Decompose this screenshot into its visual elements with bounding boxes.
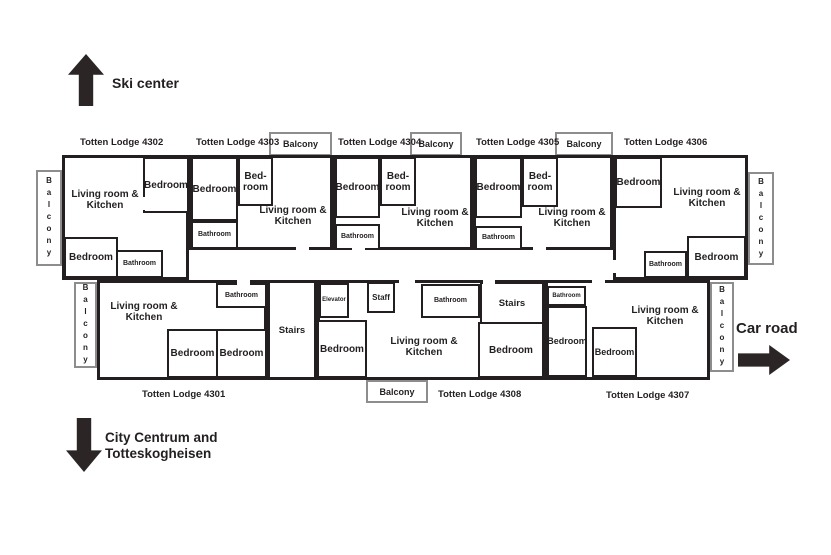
living-kitchen-label: Living room & Kitchen: [66, 189, 144, 211]
door-opening: [237, 279, 250, 287]
bathroom-label: Bathroom: [482, 234, 515, 242]
room-elevator: Elevator: [319, 283, 349, 318]
up-arrow-icon: [68, 54, 104, 106]
bedroom-label-line2: room: [528, 182, 553, 193]
room-bedroom: Bedroom: [167, 329, 218, 378]
room-living-kitchen: Living room & Kitchen: [533, 200, 611, 236]
bedroom-label: Bedroom: [489, 345, 533, 356]
living-kitchen-label: Living room & Kitchen: [378, 336, 470, 358]
living-kitchen-label: Living room & Kitchen: [533, 207, 611, 229]
bedroom-label: Bedroom: [547, 336, 587, 347]
room-balcony-4305: Balcony: [555, 132, 613, 156]
bathroom-label: Bathroom: [198, 231, 231, 239]
lodge-title-4301: Totten Lodge 4301: [142, 389, 225, 400]
room-bedroom: Bedroom: [191, 157, 238, 221]
room-living-kitchen: Living room & Kitchen: [378, 328, 470, 366]
bedroom-label: Bedroom: [595, 347, 635, 358]
room-living-kitchen: Living room & Kitchen: [618, 298, 712, 334]
room-bedroom: Bed-room: [380, 157, 416, 206]
bedroom-label: Bed-room: [386, 171, 411, 193]
room-bedroom: Bedroom: [687, 236, 746, 278]
living-kitchen-label: Living room & Kitchen: [618, 305, 712, 327]
city-centrum-label: City Centrum and Totteskogheisen: [105, 430, 218, 462]
room-bathroom: Bathroom: [116, 250, 163, 278]
staff-label: Staff: [372, 293, 390, 302]
room-bathroom: Bathroom: [644, 251, 687, 278]
lodge-title-4303: Totten Lodge 4303: [196, 137, 279, 148]
room-balcony-right-top: Balcony: [748, 172, 774, 265]
lodge-title-4305: Totten Lodge 4305: [476, 137, 559, 148]
down-arrow-icon: [66, 418, 102, 472]
room-living-kitchen: Living room & Kitchen: [396, 200, 474, 236]
bedroom-label: Bedroom: [171, 348, 215, 359]
bathroom-label: Bathroom: [341, 233, 374, 241]
bathroom-label: Bathroom: [434, 297, 467, 305]
room-balcony-left-bottom: Balcony: [74, 282, 97, 368]
room-bedroom: Bedroom: [592, 327, 637, 377]
room-bathroom: Bathroom: [475, 226, 522, 250]
room-bedroom: Bedroom: [143, 157, 189, 213]
lodge-title-4302: Totten Lodge 4302: [80, 137, 163, 148]
city-centrum-line2: Totteskogheisen: [105, 446, 218, 462]
lodge-title-4306: Totten Lodge 4306: [624, 137, 707, 148]
room-living-kitchen: Living room & Kitchen: [102, 294, 186, 330]
bathroom-label: Bathroom: [123, 260, 156, 268]
living-kitchen-label: Living room & Kitchen: [396, 207, 474, 229]
bedroom-label-line2: room: [386, 182, 411, 193]
bedroom-label: Bedroom: [336, 182, 380, 193]
door-opening: [296, 245, 309, 253]
room-bedroom: Bedroom: [335, 157, 380, 218]
bedroom-label: Bedroom: [220, 348, 264, 359]
stairs-label: Stairs: [499, 298, 525, 309]
living-kitchen-label: Living room & Kitchen: [253, 205, 333, 227]
bedroom-label-line1: Bed-: [386, 171, 411, 182]
ski-center-label: Ski center: [112, 75, 179, 91]
bedroom-label-line2: room: [243, 182, 268, 193]
room-bedroom: Bedroom: [615, 157, 662, 208]
stairs-label: Stairs: [279, 325, 305, 336]
room-stairwell-east: Stairs: [480, 282, 544, 325]
bedroom-label: Bedroom: [193, 184, 237, 195]
door-opening: [483, 279, 495, 287]
bedroom-label: Bedroom: [695, 252, 739, 263]
room-balcony-4308: Balcony: [366, 380, 428, 403]
door-opening: [533, 245, 546, 253]
door-opening: [352, 245, 365, 253]
room-balcony-right-bottom: Balcony: [710, 282, 734, 372]
room-bedroom: Bedroom: [216, 329, 267, 378]
right-arrow-icon: [738, 345, 790, 375]
room-living-kitchen: Living room & Kitchen: [668, 180, 746, 216]
city-centrum-line1: City Centrum and: [105, 430, 218, 446]
room-living-kitchen: Living room & Kitchen: [253, 198, 333, 234]
bedroom-label: Bedroom: [617, 177, 661, 188]
bedroom-label: Bedroom: [477, 182, 521, 193]
room-staff: Staff: [367, 282, 395, 313]
car-road-label: Car road: [736, 320, 798, 337]
door-opening: [399, 279, 415, 287]
room-stairwell-west: Stairs: [267, 280, 317, 380]
living-kitchen-label: Living room & Kitchen: [668, 187, 746, 209]
room-bedroom: Bedroom: [478, 322, 544, 378]
room-bedroom: Bedroom: [317, 320, 367, 378]
bedroom-label: Bedroom: [320, 344, 364, 355]
door-opening: [142, 197, 149, 210]
room-bedroom: Bedroom: [547, 306, 587, 377]
bedroom-label-line1: Bed-: [243, 171, 268, 182]
elevator-label: Elevator: [322, 297, 346, 304]
bedroom-label: Bed-room: [528, 171, 553, 193]
lodge-title-4308: Totten Lodge 4308: [438, 389, 521, 400]
room-bathroom: Bathroom: [191, 221, 238, 249]
lodge-title-4304: Totten Lodge 4304: [338, 137, 421, 148]
bedroom-label: Bedroom: [69, 252, 113, 263]
bathroom-label: Bathroom: [552, 293, 580, 300]
floor-plan-canvas: Ski center City Centrum and Totteskoghei…: [0, 0, 831, 555]
room-bathroom: Bathroom: [421, 284, 480, 318]
lodge-title-4307: Totten Lodge 4307: [606, 390, 689, 401]
room-bedroom: Bedroom: [475, 157, 522, 218]
door-opening: [612, 260, 619, 273]
room-living-kitchen: Living room & Kitchen: [66, 183, 144, 217]
bathroom-label: Bathroom: [649, 261, 682, 269]
bedroom-label: Bed-room: [243, 171, 268, 193]
room-bedroom: Bedroom: [64, 237, 118, 278]
door-opening: [592, 279, 605, 287]
room-bathroom: Bathroom: [547, 286, 586, 306]
room-balcony-left-top: Balcony: [36, 170, 62, 266]
living-kitchen-label: Living room & Kitchen: [102, 301, 186, 323]
bedroom-label: Bedroom: [144, 180, 188, 191]
bathroom-label: Bathroom: [225, 292, 258, 300]
bedroom-label-line1: Bed-: [528, 171, 553, 182]
